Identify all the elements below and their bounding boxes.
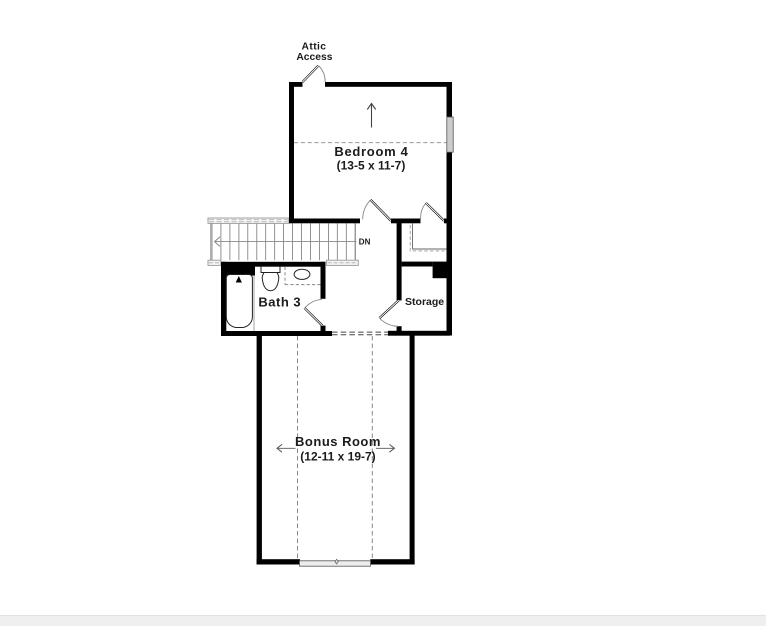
svg-text:(13-5 x 11-7): (13-5 x 11-7) — [337, 159, 406, 173]
svg-text:Storage: Storage — [405, 296, 444, 308]
svg-text:Bonus Room: Bonus Room — [295, 434, 381, 449]
svg-text:DN: DN — [359, 237, 371, 246]
svg-text:Bedroom 4: Bedroom 4 — [334, 144, 408, 159]
svg-text:Attic: Attic — [302, 41, 327, 52]
svg-text:Access: Access — [296, 52, 332, 63]
svg-text:Bath 3: Bath 3 — [258, 294, 301, 309]
svg-text:(12-11 x 19-7): (12-11 x 19-7) — [300, 450, 375, 464]
